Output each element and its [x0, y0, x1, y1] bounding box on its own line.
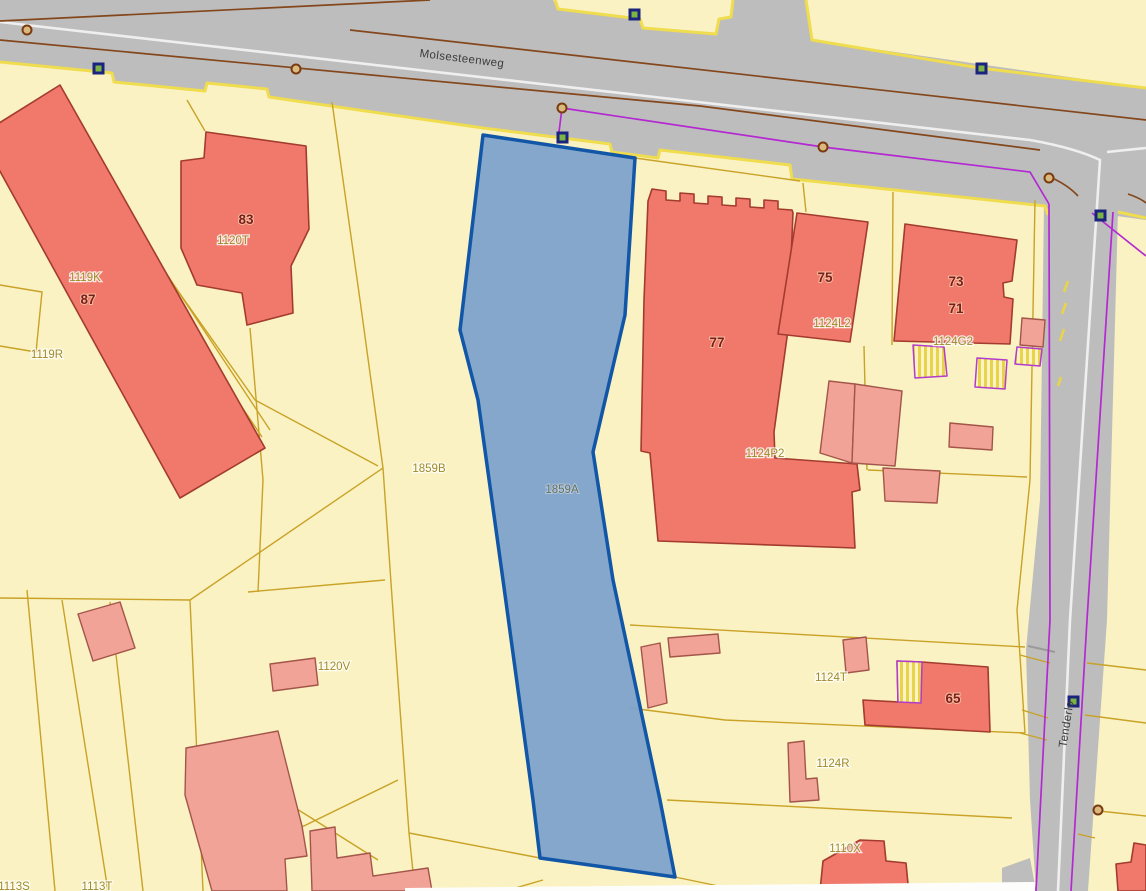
- map-canvas[interactable]: Molsesteenweg Tenderlo 83 87 75 77 73 71…: [0, 0, 1146, 891]
- parcel-label-1124G2: 1124G2: [933, 336, 973, 348]
- parcel-label-1859A: 1859A: [545, 484, 579, 496]
- survey-marker-icon: [630, 10, 639, 19]
- map-viewport[interactable]: Molsesteenweg Tenderlo 83 87 75 77 73 71…: [0, 0, 1146, 891]
- parcel-label-1124R: 1124R: [816, 758, 849, 770]
- survey-marker-icon: [558, 133, 567, 142]
- parcel-label-1119R: 1119R: [31, 349, 63, 361]
- parcel-label-1124L2: 1124L2: [813, 318, 851, 330]
- house-number-83: 83: [238, 212, 254, 227]
- boundary-point-icon: [23, 26, 32, 35]
- survey-marker-icon: [94, 64, 103, 73]
- boundary-point-icon: [292, 65, 301, 74]
- house-number-65: 65: [945, 691, 961, 706]
- parcel-label-1124T: 1124T: [815, 672, 847, 684]
- parcel-label-1119K: 1119K: [69, 272, 101, 284]
- boundary-point-icon: [819, 143, 828, 152]
- survey-marker-icon: [977, 64, 986, 73]
- parcel-label-1859B: 1859B: [412, 463, 446, 475]
- survey-marker-icon: [1096, 211, 1105, 220]
- house-number-73: 73: [948, 274, 964, 289]
- house-number-71: 71: [948, 301, 964, 316]
- house-number-75: 75: [817, 270, 833, 285]
- boundary-point-icon: [558, 104, 567, 113]
- parcel-label-1113T: 1113T: [82, 881, 113, 891]
- parcel-label-1120V: 1120V: [318, 661, 351, 673]
- boundary-point-icon: [1094, 806, 1103, 815]
- house-number-87: 87: [80, 292, 95, 307]
- parcel-label-1113S: 1113S: [0, 881, 30, 891]
- parcel-label-1124P2: 1124P2: [746, 448, 785, 460]
- parcel-label-1120T: 1120T: [217, 235, 249, 247]
- parcel-label-1110X: 1110X: [829, 843, 861, 855]
- boundary-point-icon: [1045, 174, 1054, 183]
- house-number-77: 77: [709, 335, 724, 350]
